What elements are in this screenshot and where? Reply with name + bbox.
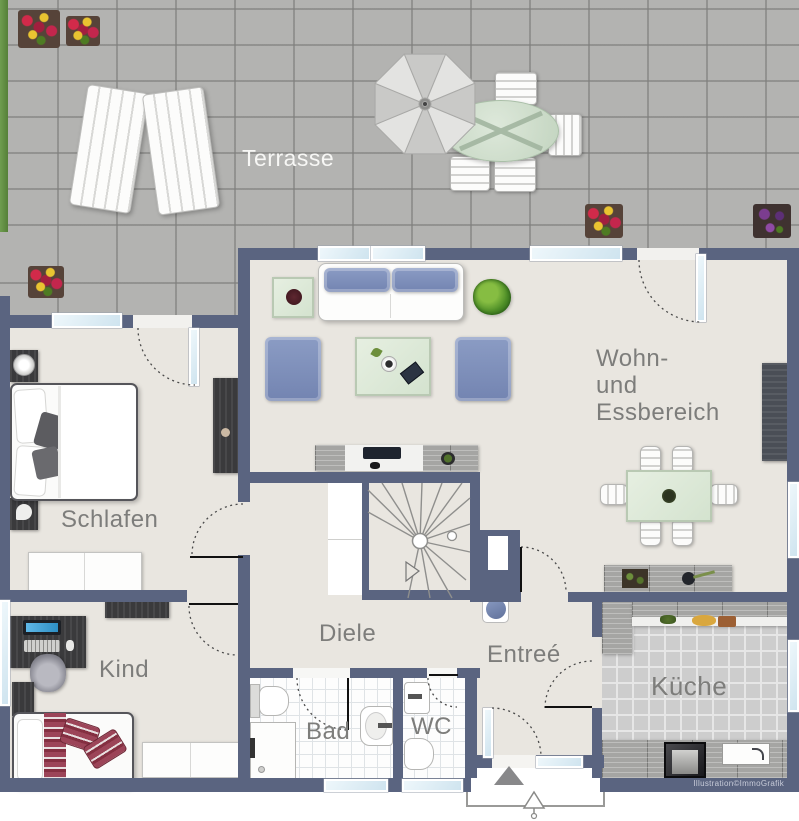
- dining-chair: [600, 484, 628, 505]
- bread: [692, 615, 716, 626]
- dining-chair: [640, 518, 661, 546]
- plant: [473, 279, 511, 315]
- cutting-board: [718, 616, 736, 627]
- terrace-chair: [494, 157, 536, 192]
- label-terrace: Terrasse: [242, 146, 334, 172]
- sofa-cushion: [324, 268, 390, 292]
- label-living: Wohn- und Essbereich: [596, 346, 720, 427]
- window: [530, 246, 622, 261]
- floorplan: Terrasse Wohn- und Essbereich Schlafen K…: [0, 0, 799, 821]
- plant-pot: [441, 452, 455, 465]
- shower: [250, 722, 296, 780]
- wall: [238, 248, 250, 502]
- monitor-screen: [26, 623, 58, 632]
- plant-tray: [622, 569, 648, 588]
- window: [788, 482, 799, 558]
- window: [788, 640, 799, 712]
- cabinet-divider: [190, 743, 191, 777]
- toilet-bowl: [259, 686, 289, 716]
- table-bowl: [662, 489, 676, 503]
- small-cabinet: [12, 682, 34, 716]
- game-controller: [370, 462, 380, 469]
- label-hall: Diele: [319, 621, 376, 648]
- wall: [592, 708, 602, 778]
- keyboard: [24, 640, 60, 652]
- flower-pot: [18, 10, 60, 48]
- window: [52, 313, 122, 328]
- window: [318, 246, 371, 261]
- dresser: [28, 552, 142, 592]
- wall: [0, 296, 10, 792]
- label-bath: Bad: [306, 719, 350, 746]
- sink-faucet: [378, 723, 392, 728]
- wall: [250, 472, 480, 483]
- label-kitchen: Küche: [651, 672, 727, 701]
- window-sidelight: [536, 756, 583, 768]
- terrace-chair: [450, 156, 490, 191]
- window: [371, 246, 425, 261]
- front-door-leaf: [483, 708, 493, 758]
- window: [0, 600, 10, 706]
- striped-blanket: [44, 713, 66, 787]
- wall: [465, 678, 477, 778]
- wall: [10, 590, 187, 602]
- label-wc: WC: [411, 714, 452, 741]
- wall: [238, 590, 250, 792]
- wall: [362, 590, 480, 600]
- wall: [457, 668, 480, 678]
- shower-drain: [258, 766, 265, 773]
- label-bedroom: Schlafen: [61, 507, 158, 534]
- dining-chair: [672, 518, 693, 546]
- armchair: [455, 337, 511, 401]
- herbs: [660, 615, 676, 624]
- bed-pillow: [17, 719, 43, 781]
- wall: [393, 676, 403, 778]
- desk-chair: [30, 654, 66, 692]
- tv: [363, 447, 401, 459]
- wc-toilet: [404, 738, 434, 770]
- landing-divider: [328, 539, 362, 540]
- door-opening: [133, 315, 192, 328]
- decor-bowl: [381, 356, 397, 372]
- wall: [362, 483, 369, 598]
- kitchen-cabinet: [602, 602, 632, 654]
- window: [402, 779, 463, 792]
- flower-pot: [753, 204, 791, 238]
- door-opening: [427, 668, 457, 678]
- oven-door: [672, 750, 698, 774]
- bed-duvet: [58, 386, 136, 498]
- dining-chair: [710, 484, 738, 505]
- tall-cabinet: [762, 363, 788, 461]
- wardrobe-knob: [221, 428, 230, 437]
- entrance-arrow: [494, 766, 524, 785]
- terrace-door-leaf: [696, 254, 706, 322]
- shell-decor: [16, 504, 32, 520]
- wall: [350, 668, 427, 678]
- child-cabinet: [142, 742, 240, 778]
- wall: [568, 592, 799, 602]
- dresser-divider: [84, 553, 85, 591]
- label-entry: Entreé: [487, 642, 561, 669]
- door-opening: [637, 248, 699, 260]
- terrace-door-leaf: [189, 328, 199, 386]
- window: [324, 779, 388, 792]
- wall: [470, 592, 521, 602]
- bedside-lamp: [13, 354, 35, 376]
- wall: [238, 668, 293, 678]
- sofa-seat-divider: [390, 294, 391, 318]
- door-opening: [293, 668, 350, 678]
- terrace-table: [443, 100, 559, 162]
- table-plant: [286, 289, 302, 305]
- label-child: Kind: [99, 657, 149, 684]
- chimney-flue: [488, 536, 508, 570]
- wardrobe: [213, 378, 239, 473]
- sofa-cushion: [392, 268, 458, 292]
- wc-sink-faucet: [408, 694, 422, 699]
- grass-strip: [0, 0, 8, 232]
- credit-watermark: Illustration©ImmoGrafik: [560, 780, 784, 789]
- wall: [238, 555, 250, 592]
- flower-pot: [585, 204, 623, 238]
- flower-pot: [66, 16, 100, 46]
- flower-pot: [28, 266, 64, 298]
- mouse: [66, 640, 74, 651]
- wall: [592, 602, 602, 637]
- wall: [0, 778, 471, 792]
- armchair: [265, 337, 321, 401]
